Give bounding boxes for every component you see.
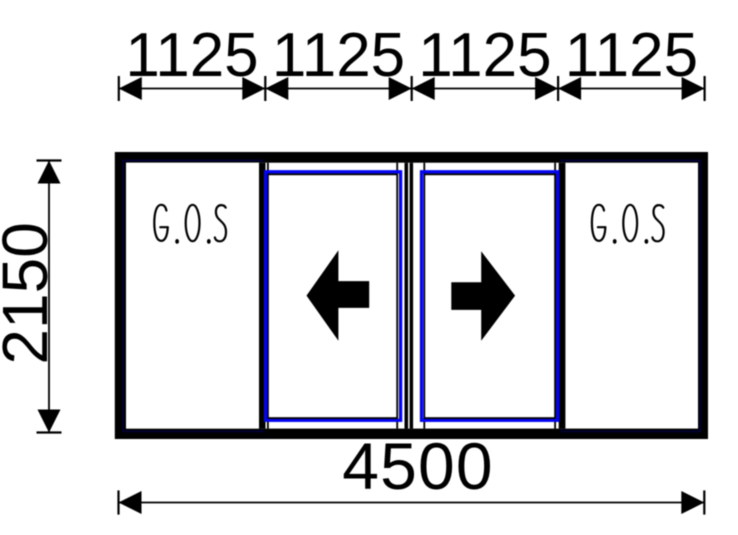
svg-text:4500: 4500 [342,429,494,503]
svg-text:2150: 2150 [0,222,61,364]
svg-text:1125: 1125 [125,21,258,90]
svg-text:1125: 1125 [418,21,551,90]
svg-text:1125: 1125 [272,21,405,90]
svg-text:1125: 1125 [565,21,698,90]
